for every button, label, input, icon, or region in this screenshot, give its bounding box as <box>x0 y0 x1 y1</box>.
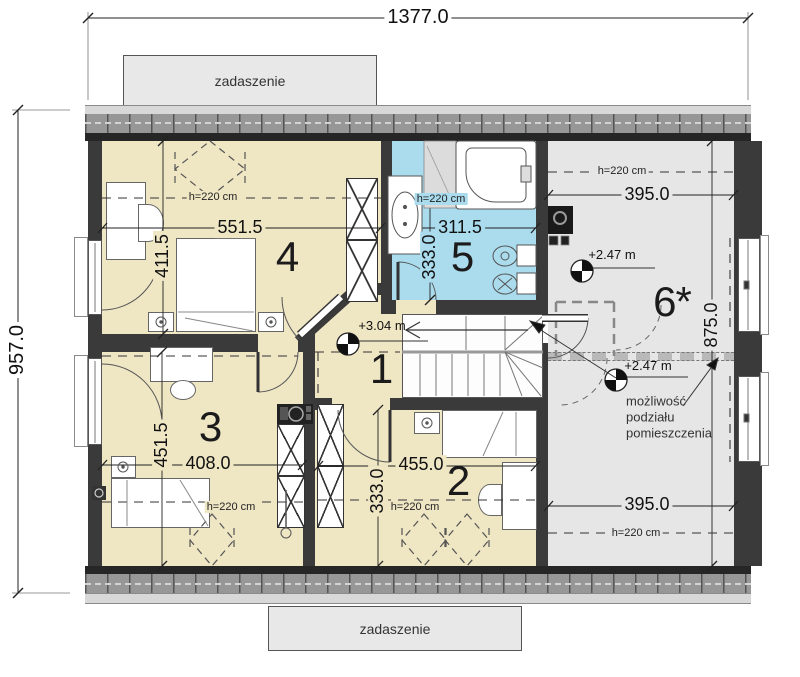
bed-room4 <box>176 238 256 332</box>
room3-height-dim: 451.5 <box>152 419 172 470</box>
wardrobe-room3-a <box>277 424 305 476</box>
overall-width-dim: 1377.0 <box>384 6 451 28</box>
wardrobe-room4-upper <box>346 178 378 240</box>
room2-height-dim: 333.0 <box>368 465 388 516</box>
canopy-top-label: zadaszenie <box>215 73 286 89</box>
eave-fascia-bottom <box>85 593 751 604</box>
room3-width-dim: 408.0 <box>182 454 233 474</box>
room4-height-dim: 411.5 <box>153 231 173 281</box>
balcony-door-room3 <box>88 358 102 445</box>
division-note-line3: pomieszczenia <box>626 426 712 441</box>
room6-level-mid: +2.47 m <box>622 359 673 373</box>
room6-ceiling-top-note: h=220 cm <box>596 165 649 177</box>
room4-width-dim: 551.5 <box>214 218 265 238</box>
chair-room2 <box>478 484 502 516</box>
nightstand-room4-left <box>148 312 174 332</box>
wall-right <box>734 141 762 566</box>
room3-ceiling-note: h=220 cm <box>205 501 258 513</box>
eave-dash-top <box>85 122 751 124</box>
window-room6-upper <box>738 238 760 332</box>
wardrobe-room3-d <box>317 466 344 528</box>
division-note-line1: możliwość <box>626 394 686 409</box>
room1-level: +3.04 m <box>356 319 407 333</box>
chair-room3 <box>170 380 196 400</box>
room5-height-dim: 333.0 <box>420 231 440 282</box>
desk-room2 <box>502 462 537 530</box>
room2-width-dim: 455.0 <box>395 455 446 475</box>
wall-top <box>85 133 751 141</box>
bed-room2 <box>442 410 537 458</box>
room6-ceiling-bottom-note: h=220 cm <box>610 527 663 539</box>
room2-ceiling-note: h=220 cm <box>389 501 442 513</box>
canopy-top: zadaszenie <box>123 55 377 107</box>
room5-number: 5 <box>451 234 473 280</box>
nightstand-room4-right <box>258 312 284 332</box>
wardrobe-room3-c <box>317 404 344 466</box>
desk-room3 <box>150 347 213 382</box>
room6-width-bottom-dim: 395.0 <box>621 495 672 515</box>
sill-right-lower <box>760 372 769 466</box>
wardrobe-room3-b <box>277 476 305 528</box>
staircase <box>402 314 543 398</box>
wall-bath-bottom-left <box>381 300 396 314</box>
canopy-bottom: zadaszenie <box>268 606 522 651</box>
canopy-bottom-label: zadaszenie <box>360 621 431 637</box>
room5-ceiling-note: h=220 cm <box>415 193 468 205</box>
room1-number: 1 <box>370 346 392 392</box>
room4-ceiling-note: h=220 cm <box>187 191 240 203</box>
overall-height-dim: 957.0 <box>6 322 28 378</box>
room6-number: 6* <box>653 279 691 325</box>
room5-width-dim: 311.5 <box>435 218 485 238</box>
room3-number: 3 <box>199 404 221 450</box>
room6-level-top: +2.47 m <box>586 248 637 262</box>
wardrobe-room4-lower <box>346 240 378 302</box>
window-room6-lower <box>738 376 760 462</box>
wall-room4-bath <box>381 141 392 314</box>
wall-bath-room6 <box>536 141 548 314</box>
nightstand-room2 <box>414 412 440 434</box>
balcony-door-room4 <box>88 240 102 315</box>
wall-bath-bottom-right <box>436 300 548 314</box>
sill-left-lower <box>74 355 88 447</box>
wall-bottom <box>85 566 751 574</box>
wall-hall-room2-right <box>390 398 548 410</box>
bed-room3 <box>111 478 210 528</box>
wall-left <box>88 141 102 566</box>
room4-number: 4 <box>276 234 298 280</box>
division-note-line2: podziału <box>626 410 674 425</box>
room2-number: 2 <box>447 458 469 504</box>
room6-width-top-dim: 395.0 <box>621 185 672 205</box>
sill-left-upper <box>74 237 88 317</box>
sill-right-upper <box>760 235 769 335</box>
floor-plan: zadaszenie zadaszenie <box>0 0 800 677</box>
room6-height-dim: 875.0 <box>702 299 722 350</box>
nightstand-room3 <box>111 456 136 478</box>
eave-dash-bottom <box>85 583 751 585</box>
